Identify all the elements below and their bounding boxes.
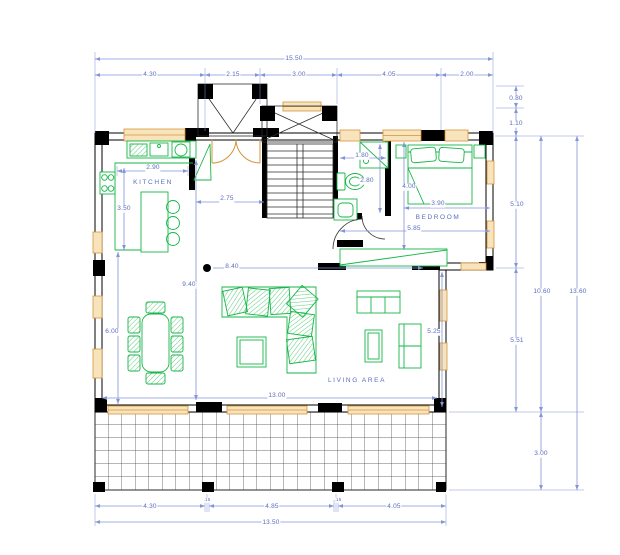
dim-bottom-seg1: 4.30 [142, 504, 157, 511]
dim-bottom-col2: .15 [335, 498, 342, 503]
dining-chair [128, 355, 140, 371]
side-table [365, 330, 382, 362]
toilet-tank [337, 173, 345, 190]
pillow [439, 147, 465, 163]
dish-rack [130, 144, 147, 156]
dim-living-span: 8.40 [224, 264, 239, 271]
dining-chair [146, 373, 165, 384]
sofa-cushion [288, 311, 315, 336]
dim-bedroom-width: 3.90 [430, 201, 445, 208]
dim-kitchen-counter: 2.90 [145, 165, 160, 172]
entry-closet [194, 144, 211, 180]
dim-right-house-total: 10.60 [532, 289, 551, 296]
dim-canopy-offset: 0.80 [508, 96, 523, 103]
porch-column [198, 84, 213, 99]
porch-column [252, 84, 267, 99]
bench-sofa [357, 291, 400, 313]
dim-top-seg5: 2.00 [459, 72, 474, 79]
dim-bedroom-bath-width: 5.85 [406, 226, 421, 233]
deck-terrace [93, 412, 446, 492]
dim-stair-offset: 1.10 [508, 121, 523, 128]
dim-bottom-seg3: 4.05 [386, 504, 401, 511]
staircase [260, 106, 337, 218]
dining-chair [128, 317, 140, 333]
dim-bedroom-depth: 4.00 [401, 184, 416, 191]
living-dining-area [128, 264, 421, 384]
stair-column [260, 106, 275, 121]
deck-column [93, 482, 105, 492]
stair-column [322, 106, 337, 121]
floor-plan-canvas: 15.50 4.30 2.15 3.00 4.05 2.00 0.80 1.10… [0, 0, 620, 555]
floor-plan-drawing [0, 0, 620, 555]
bedroom-south-window [461, 263, 486, 270]
room-label-kitchen: KITCHEN [132, 180, 174, 187]
dining-chair [171, 317, 183, 333]
dining-chair [171, 355, 183, 371]
bathroom-door-arc [362, 216, 385, 239]
dim-kitchen-depth: 3.50 [116, 206, 131, 213]
dining-chair [146, 302, 165, 313]
deck-column [436, 482, 446, 492]
dim-bottom-seg2: 4.85 [264, 504, 279, 511]
sofa-cushion [269, 287, 291, 314]
sofa-cushion [246, 288, 271, 316]
dining-table [142, 314, 169, 372]
dim-top-seg3: 3.00 [291, 72, 306, 79]
dim-right-overall: 13.60 [568, 289, 587, 296]
dim-top-seg4: 4.05 [381, 72, 396, 79]
dim-right-upper: 5.10 [509, 202, 524, 209]
room-label-bedroom: BEDROOM [415, 215, 462, 222]
dim-entry-hall: 2.75 [219, 196, 234, 203]
coffee-table [237, 337, 266, 367]
dim-dining-zone: 6.00 [104, 329, 119, 336]
reference-column-dot [203, 264, 211, 272]
deck-column [332, 482, 344, 492]
right-wall-upper [486, 133, 493, 270]
dim-top-seg1: 4.30 [142, 72, 157, 79]
dining-chair [128, 336, 140, 352]
dim-bath-depth: 2.80 [359, 178, 374, 185]
entry-double-door [212, 139, 260, 163]
dim-top-seg2: 2.15 [225, 72, 240, 79]
sofa-cushion [223, 287, 248, 316]
dim-living-width: 5.25 [426, 329, 441, 336]
dim-living-depth: 9.40 [181, 282, 196, 289]
nightstand [474, 145, 485, 158]
dim-bottom-col1: .15 [204, 498, 211, 503]
kitchen-area [100, 141, 211, 252]
dim-bottom-total: 13.50 [261, 520, 280, 527]
kitchen-island [141, 192, 168, 252]
sofa-cushion [286, 336, 315, 363]
dim-bath-width: 1.80 [354, 153, 369, 160]
room-label-living: LIVING AREA [327, 378, 387, 385]
dim-deck-depth: 3.00 [533, 451, 548, 458]
dim-right-lower: 5.51 [509, 338, 524, 345]
nightstand [396, 145, 406, 158]
pillow [410, 147, 436, 163]
dim-top-total: 15.50 [284, 56, 303, 63]
deck-column [202, 482, 214, 492]
dining-chair [171, 336, 183, 352]
dim-interior-width: 13.00 [267, 393, 286, 400]
